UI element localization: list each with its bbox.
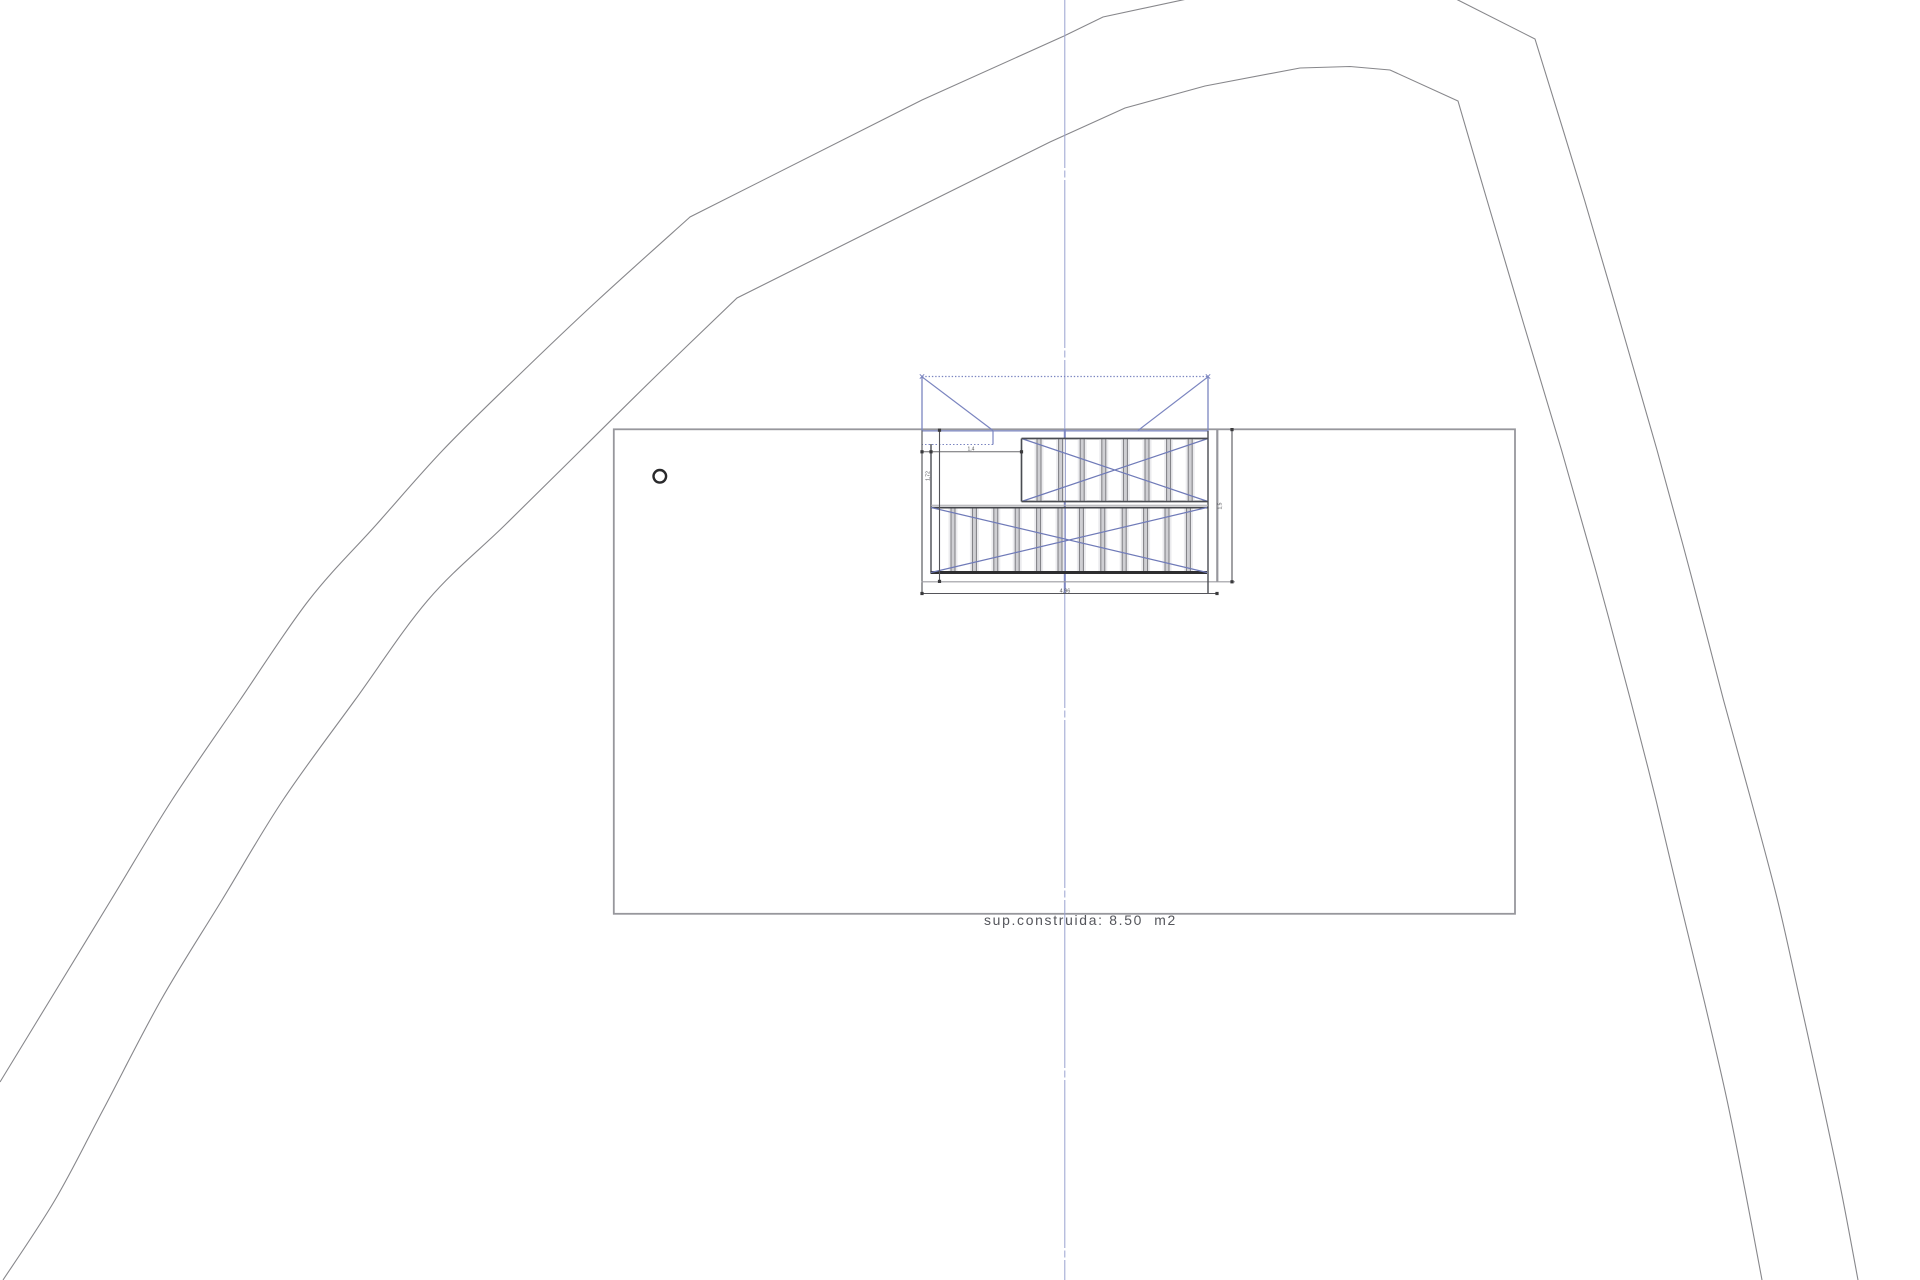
svg-text:1,72: 1,72 xyxy=(926,471,932,481)
svg-text:1,5: 1,5 xyxy=(1218,502,1224,509)
svg-text:1,4: 1,4 xyxy=(968,446,975,452)
svg-text:4,96: 4,96 xyxy=(1060,588,1071,594)
svg-text:sup.construida: 8.50 m2: sup.construida: 8.50 m2 xyxy=(984,912,1177,928)
